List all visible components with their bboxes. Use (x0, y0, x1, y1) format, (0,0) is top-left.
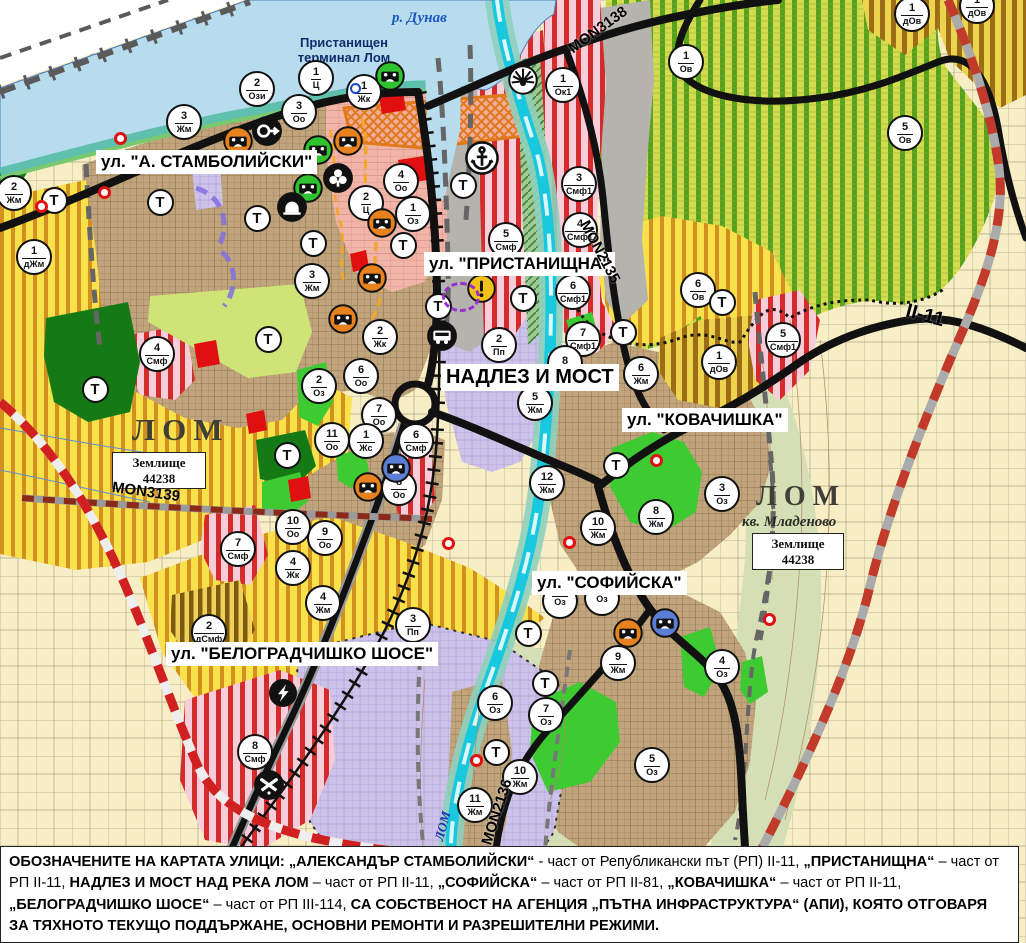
zone-marker-code: Жк (372, 338, 389, 349)
zone-marker: 5Смф1 (765, 322, 801, 358)
transport-t-marker: Т (244, 205, 271, 232)
culture-monument-blue-icon (650, 608, 680, 643)
footer-text-segment: – част от РП II-11, (309, 875, 438, 891)
zone-marker: 4Смф (139, 336, 175, 372)
zone-marker-code: Смф (145, 355, 170, 366)
zone-marker-code: Смф (494, 241, 519, 252)
zone-marker-code: Пп (405, 626, 421, 637)
zone-marker-code: Жк (285, 569, 302, 580)
zone-marker: 1Ок1 (545, 67, 581, 103)
footer-text-segment: НАДЛЕЗ И МОСТ НАД РЕКА ЛОМ (70, 875, 309, 891)
zone-marker-code: Жм (632, 375, 651, 386)
zone-marker-code: Жм (526, 404, 545, 415)
zone-marker-number: 6 (638, 363, 644, 374)
zone-marker: 11Оо (314, 422, 350, 458)
zone-marker-code: Смф (243, 753, 268, 764)
zone-marker-code: Жм (511, 778, 530, 789)
zone-marker-number: 10 (514, 766, 526, 777)
zone-marker-number: 1 (361, 81, 367, 92)
zone-marker-number: 8 (252, 741, 258, 752)
zone-marker: 5Ов (887, 115, 923, 151)
zone-marker-number: 3 (309, 270, 315, 281)
zone-marker: 4Оо (383, 163, 419, 199)
zone-marker-code: Жм (609, 664, 628, 675)
zone-marker: 10Жм (502, 759, 538, 795)
zone-marker: 2Жм (0, 175, 32, 211)
zone-marker-code: дОв (708, 363, 730, 374)
zone-marker-number: 1 (683, 51, 689, 62)
zone-marker: 1дОв (959, 0, 995, 24)
bus-station-icon (426, 320, 458, 357)
zone-marker-code: Оо (391, 489, 408, 500)
zone-marker-number: 3 (410, 614, 416, 625)
zone-marker-number: 5 (649, 754, 655, 765)
zone-marker: 3Оз (704, 476, 740, 512)
zone-marker-code: Жм (5, 194, 24, 205)
gate-icon (251, 115, 283, 152)
red-ring-marker (470, 754, 483, 767)
zone-marker: 4Оз (704, 649, 740, 685)
zone-marker-number: 5 (780, 329, 786, 340)
footer-text-segment: ОБОЗНАЧЕНИТЕ НА КАРТАТА УЛИЦИ: „АЛЕКСАНД… (9, 854, 534, 870)
zone-marker-code (563, 368, 567, 370)
zone-marker-code: Жм (647, 518, 666, 529)
zone-marker-code: Ов (690, 291, 707, 302)
zone-marker-code: Ов (678, 63, 695, 74)
zone-marker: 4Смф1 (562, 212, 598, 248)
zone-marker-code: Оз (538, 716, 553, 727)
zone-marker-number: 10 (592, 517, 604, 528)
zone-marker-code: Оо (393, 182, 410, 193)
zone-marker: 2Ози (239, 71, 275, 107)
zone-marker: 8Жм (638, 499, 674, 535)
culture-monument-icon (367, 208, 397, 243)
zone-marker: 3Жм (166, 104, 202, 140)
transport-t-marker: Т (603, 452, 630, 479)
zone-marker: 5Смф (488, 222, 524, 258)
zone-marker-code: Пп (491, 346, 507, 357)
zone-marker-code: Смф1 (768, 341, 798, 352)
zone-marker-code: Жм (589, 529, 608, 540)
zone-marker: Оз (542, 583, 578, 619)
zone-marker-number: 1 (410, 203, 416, 214)
red-ring-marker (98, 186, 111, 199)
blue-ring-marker (350, 83, 361, 94)
zone-marker-number: 1 (560, 74, 566, 85)
zone-marker: 11Жм (457, 787, 493, 823)
zone-marker: 3Оо (281, 94, 317, 130)
zone-marker: 2Пп (481, 327, 517, 363)
zone-marker-number: 9 (322, 527, 328, 538)
culture-monument-icon (333, 126, 363, 161)
culture-monument-icon (357, 263, 387, 298)
anchor-icon (465, 141, 499, 180)
zone-marker-number: 4 (320, 592, 326, 603)
culture-monument-icon (353, 472, 383, 507)
culture-monument-green-icon (375, 61, 405, 96)
zone-marker-code: дСмф (194, 633, 225, 644)
zone-marker: 3Жм (294, 263, 330, 299)
zone-marker: 6Оо (343, 358, 379, 394)
zone-marker-code: Оо (291, 113, 308, 124)
zone-marker-code: Жм (314, 604, 333, 615)
zone-marker-number: 2 (377, 326, 383, 337)
zone-marker-number: 6 (413, 430, 419, 441)
zone-marker-number: 2 (254, 78, 260, 89)
zone-marker-number: 2 (496, 334, 502, 345)
zone-marker-code: дЖм (22, 258, 47, 269)
zone-marker-number: 10 (287, 516, 299, 527)
zone-marker-code: Ози (246, 90, 267, 101)
arch-icon (276, 191, 308, 228)
transport-t-marker: Т (147, 189, 174, 216)
zone-marker: 7Смф (220, 531, 256, 567)
zone-marker-number: 7 (376, 404, 382, 415)
zone-marker-number: 3 (719, 483, 725, 494)
zone-marker-number: 11 (469, 794, 481, 805)
zone-marker: 2Оз (301, 368, 337, 404)
zone-marker-code: Ок1 (553, 86, 574, 97)
zone-marker-code: Смф1 (565, 231, 595, 242)
zone-marker-number: 5 (532, 392, 538, 403)
zone-marker-code: Оз (594, 593, 609, 604)
zone-marker-number: 2 (11, 182, 17, 193)
zone-marker: 5Оз (634, 747, 670, 783)
zone-marker-code: Оо (324, 441, 341, 452)
footer-text-segment: - част от Републикански път (РП) II-11, (534, 854, 803, 870)
zone-marker: 6Жм (623, 356, 659, 392)
footer-text-segment: – част от РП II-11, (776, 875, 901, 891)
transport-t-marker: Т (610, 319, 637, 346)
red-ring-marker (650, 454, 663, 467)
red-ring-marker (35, 200, 48, 213)
culture-monument-blue-icon (381, 453, 411, 488)
power-station-icon (268, 678, 298, 713)
zone-marker-code: Оз (644, 766, 659, 777)
red-ring-marker (763, 613, 776, 626)
zone-marker: 3Пп (395, 607, 431, 643)
zone-marker-code: Оо (317, 539, 334, 550)
zone-marker-number: 5 (902, 122, 908, 133)
zone-marker-number: 4 (398, 170, 404, 181)
zone-marker-code: Смф1 (558, 293, 588, 304)
footer-text-segment: – част от РП III-114, (209, 897, 350, 913)
zone-marker-code: дОв (901, 15, 923, 26)
culture-monument-icon (328, 304, 358, 339)
zone-marker-number: 1 (974, 0, 980, 6)
zone-marker-number: 2 (363, 192, 369, 203)
culture-monument-icon (223, 126, 253, 161)
zone-marker-number: 6 (695, 279, 701, 290)
zone-marker: 9Оо (307, 520, 343, 556)
zone-marker-number: 6 (358, 365, 364, 376)
zone-marker: 3Смф1 (561, 166, 597, 202)
zone-marker: 12Жм (529, 465, 565, 501)
zone-marker-number: 3 (296, 101, 302, 112)
zone-marker-number: 4 (290, 557, 296, 568)
zone-marker-code: Ов (897, 134, 914, 145)
zone-marker-code: Смф1 (564, 185, 594, 196)
zone-marker-code: Смф (226, 550, 251, 561)
zone-marker: 1дОв (701, 344, 737, 380)
zone-marker-number: 9 (615, 652, 621, 663)
zone-marker: 5Жм (517, 385, 553, 421)
club-icon (322, 162, 354, 199)
zone-marker-code: Жм (538, 484, 557, 495)
zone-marker: 1Оз (395, 196, 431, 232)
transport-t-marker: Т (483, 739, 510, 766)
zone-marker-number: 8 (653, 506, 659, 517)
zone-marker-code: Жм (303, 282, 322, 293)
zone-marker-code: Оо (285, 528, 302, 539)
zone-marker-code: Оз (714, 668, 729, 679)
zone-marker: 1Жс (348, 423, 384, 459)
zone-marker-number: 1 (909, 3, 915, 14)
transport-t-marker: Т (255, 326, 282, 353)
footer-text-segment: „СОФИЙСКА“ (438, 875, 538, 891)
zone-marker-number: 7 (580, 328, 586, 339)
red-ring-marker (442, 537, 455, 550)
footer-text-segment: „КОВАЧИШКА“ (667, 875, 776, 891)
zone-marker-code: Жм (175, 123, 194, 134)
zone-marker: 10Оо (275, 509, 311, 545)
zone-marker-code: дОв (966, 7, 988, 18)
transport-t-marker: Т (532, 670, 559, 697)
zone-marker: 1Ц (298, 60, 334, 96)
zone-marker: 4Жм (305, 585, 341, 621)
zone-marker-number: 3 (181, 111, 187, 122)
zone-marker-code: Оз (552, 596, 567, 607)
zone-marker-number: 1 (716, 351, 722, 362)
zone-marker-code: Жс (357, 442, 374, 453)
zone-marker-code: Оз (714, 495, 729, 506)
zone-marker-number: 4 (719, 656, 725, 667)
red-ring-marker (563, 536, 576, 549)
transport-t-marker: Т (510, 285, 537, 312)
zone-marker: 6Смф1 (555, 274, 591, 310)
zone-marker: 2дСмф (191, 614, 227, 650)
zone-marker-number: 4 (154, 343, 160, 354)
transport-t-marker: Т (82, 376, 109, 403)
zone-marker-code: Оз (487, 704, 502, 715)
zone-marker-code: Оо (353, 377, 370, 388)
zone-marker-number: 12 (541, 472, 553, 483)
zone-marker-code: Смф (404, 442, 429, 453)
zone-marker: Оз (584, 580, 620, 616)
zone-marker-number: 5 (503, 229, 509, 240)
zone-marker-number: 7 (543, 704, 549, 715)
zone-marker-code: Оз (405, 215, 420, 226)
footer-text-segment: „ПРИСТАНИЩНА“ (803, 854, 934, 870)
footer-text-segment: – част от РП II-81, (537, 875, 667, 891)
zone-marker: 4Жк (275, 550, 311, 586)
purple-zone-icon (442, 282, 480, 312)
zone-marker: 6Оз (477, 685, 513, 721)
zone-marker: 8Смф (237, 734, 273, 770)
zone-marker-code: Жк (356, 93, 373, 104)
zone-marker: 1Ов (668, 44, 704, 80)
zone-marker-number: 2 (206, 621, 212, 632)
zone-marker: 2Жк (362, 319, 398, 355)
zone-marker-number: 11 (326, 429, 338, 440)
red-ring-marker (114, 132, 127, 145)
culture-monument-icon (613, 618, 643, 653)
zone-marker-number: 6 (570, 281, 576, 292)
zone-marker-number: 7 (235, 538, 241, 549)
zone-marker-number: 4 (577, 219, 583, 230)
footer-text-segment: „БЕЛОГРАДЧИШКО ШОСЕ“ (9, 897, 209, 913)
zone-marker-number: 1 (31, 246, 37, 257)
zone-marker-number: 3 (576, 173, 582, 184)
zone-marker: 7Оз (528, 697, 564, 733)
transport-t-marker: Т (274, 442, 301, 469)
markers-layer: 2Ози1Ц1Жк3Оо3Жм2Жм1дЖм4Оо2Ц1Оз1Ок13Смф14… (0, 0, 1026, 943)
zone-marker: 1дЖм (16, 239, 52, 275)
zone-marker-number: 1 (313, 67, 319, 78)
zone-marker-number: 6 (492, 692, 498, 703)
zone-marker-number: 1 (363, 430, 369, 441)
zone-marker-code: Жм (466, 806, 485, 817)
zone-marker-number: 8 (562, 356, 568, 367)
transport-t-marker: Т (709, 289, 736, 316)
sun-icon (508, 65, 538, 100)
zone-marker: 8 (547, 345, 583, 381)
zone-marker-number: 2 (316, 375, 322, 386)
zone-marker: 10Жм (580, 510, 616, 546)
zone-marker: 1дОв (894, 0, 930, 32)
rail-crossing-icon (253, 769, 285, 806)
transport-t-marker: Т (515, 620, 542, 647)
zone-marker-code: Ц (311, 79, 322, 90)
zone-marker-code: Оз (311, 387, 326, 398)
transport-t-marker: Т (300, 230, 327, 257)
map-footer-note: ОБОЗНАЧЕНИТЕ НА КАРТАТА УЛИЦИ: „АЛЕКСАНД… (0, 846, 1019, 943)
zoning-map[interactable]: р. Дунав Пристанищен терминал Лом ЛОМ ЛО… (0, 0, 1026, 943)
